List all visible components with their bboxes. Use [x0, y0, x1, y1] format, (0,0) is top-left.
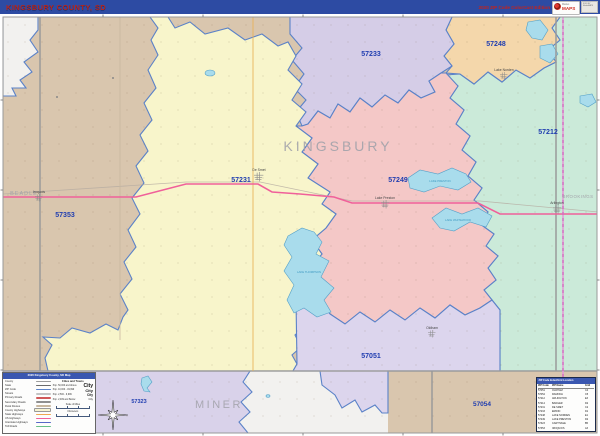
lake-label-thompson: LAKE THOMPSON — [297, 270, 321, 274]
scale-miles: Scale of Miles — [53, 404, 93, 410]
city-pop-row: Pop. 2,499 and BelowCity — [53, 397, 93, 402]
brand-logo-side: SOLD BY MarketMAPS — [581, 1, 598, 13]
city-label-lake-norden: Lake Norden — [494, 68, 514, 72]
legend-item-label: County Highways — [5, 409, 25, 412]
zip-label-57323: 57323 — [131, 399, 146, 405]
legend-item-label: Interstate Highways — [5, 421, 28, 424]
city-label-oldham: Oldham — [426, 326, 438, 330]
legend-item-label: State Highways — [5, 413, 23, 416]
city-label-lake-preston: Lake Preston — [375, 196, 395, 200]
primary-roads-sample — [36, 397, 51, 398]
zip-label-57249: 57249 — [388, 177, 408, 184]
town-dot-2 — [56, 96, 58, 98]
zip-cell: IROQUOIS — [552, 427, 585, 431]
county-hwy-sample — [34, 408, 51, 412]
legend-cities-col: Cities and Towns Pop. 50,000 and AboveCi… — [51, 380, 93, 429]
county-label-miner: MINER — [195, 399, 243, 411]
city-sample-small: City — [87, 393, 93, 397]
zip-cell: 57353 — [538, 427, 552, 431]
brand-logo-text: MAPS — [562, 6, 575, 11]
interstate-sample — [36, 422, 51, 423]
lake-label-whitewood: LAKE WHITEWOOD — [445, 218, 471, 222]
lake-label-preston: LAKE PRESTON — [429, 179, 450, 183]
county-label-brookings: BROOKINGS — [562, 194, 593, 199]
brand-logo-main: Market MAPS — [552, 1, 580, 15]
pop-label: Pop. 50,000 and Above — [53, 385, 77, 387]
county-label-kingsbury: KINGSBURY — [283, 138, 392, 154]
zip-label-57233: 57233 — [361, 51, 381, 58]
toll-roads-sample — [36, 426, 51, 427]
city-label-iroquois: Iroquois — [33, 190, 45, 194]
edition-label: 2020 ZIP Code ColorCast Edition — [479, 5, 550, 10]
county-line-sample — [36, 381, 51, 382]
compass-rose-icon — [97, 399, 129, 431]
legend-item-label: State — [5, 384, 11, 387]
zip-label-57212: 57212 — [538, 129, 558, 136]
zip-label-57231: 57231 — [231, 177, 251, 184]
legend-item-label: US Highways — [5, 417, 21, 420]
zip-index-table: ZIP Code Index/Grid Location ZIP Code ZI… — [536, 377, 596, 432]
legend-road-items: County State ZIP Code Streets Primary Ro… — [5, 380, 51, 429]
county-map: KINGSBURY BEADLE MINER BROOKINGS 57353 5… — [0, 0, 600, 436]
zip-label-57353: 57353 — [55, 212, 75, 219]
pop-label: Pop. 2,500 - 9,999 — [53, 394, 72, 396]
state-line-sample — [36, 385, 51, 386]
city-sample-tiny: City — [89, 398, 93, 401]
brand-logo: Market MAPS SOLD BY MarketMAPS — [552, 1, 598, 13]
brand-swirl-icon — [554, 3, 561, 10]
scale-km: Kilometers — [53, 411, 93, 417]
map-legend: 2020 Kingsbury County, SD Map County Sta… — [2, 372, 96, 434]
zip-label-57248: 57248 — [486, 41, 506, 48]
us-hwy-sample — [36, 418, 51, 419]
town-dot-1 — [112, 77, 114, 79]
secondary-roads-sample — [36, 401, 51, 402]
legend-item-label: Primary Roads — [5, 396, 22, 399]
state-hwy-sample — [36, 414, 51, 415]
city-label-arlington: Arlington — [550, 201, 563, 205]
zip-cell: A3 — [585, 427, 594, 431]
legend-item: Toll Roads — [5, 425, 51, 429]
legend-item-label: Toll Roads — [5, 425, 17, 428]
zip-line-sample — [36, 389, 51, 390]
city-label-de-smet: De Smet — [252, 168, 265, 172]
map-title: KINGSBURY COUNTY, SD — [6, 3, 106, 12]
zip-label-57054: 57054 — [473, 401, 491, 408]
app-header: KINGSBURY COUNTY, SD 2020 ZIP Code Color… — [0, 0, 600, 14]
map-page: KINGSBURY BEADLE MINER BROOKINGS 57353 5… — [0, 0, 600, 436]
zip-label-57051: 57051 — [361, 353, 381, 360]
scale-km-bar — [56, 413, 90, 417]
legend-item-label: Streets — [5, 392, 13, 395]
pond-1 — [205, 70, 215, 76]
pop-label: Pop. 10,000 - 49,999 — [53, 389, 74, 391]
pop-label: Pop. 2,499 and Below — [53, 399, 75, 401]
legend-item-label: County — [5, 380, 13, 383]
legend-item-label: ZIP Code — [5, 388, 16, 391]
rural-routes-sample — [36, 405, 51, 406]
legend-item-label: Rural Routes — [5, 405, 20, 408]
legend-item-label: Secondary Roads — [5, 401, 26, 404]
streets-sample — [36, 393, 51, 394]
pond-2 — [266, 395, 270, 398]
scale-miles-bar — [56, 406, 90, 410]
